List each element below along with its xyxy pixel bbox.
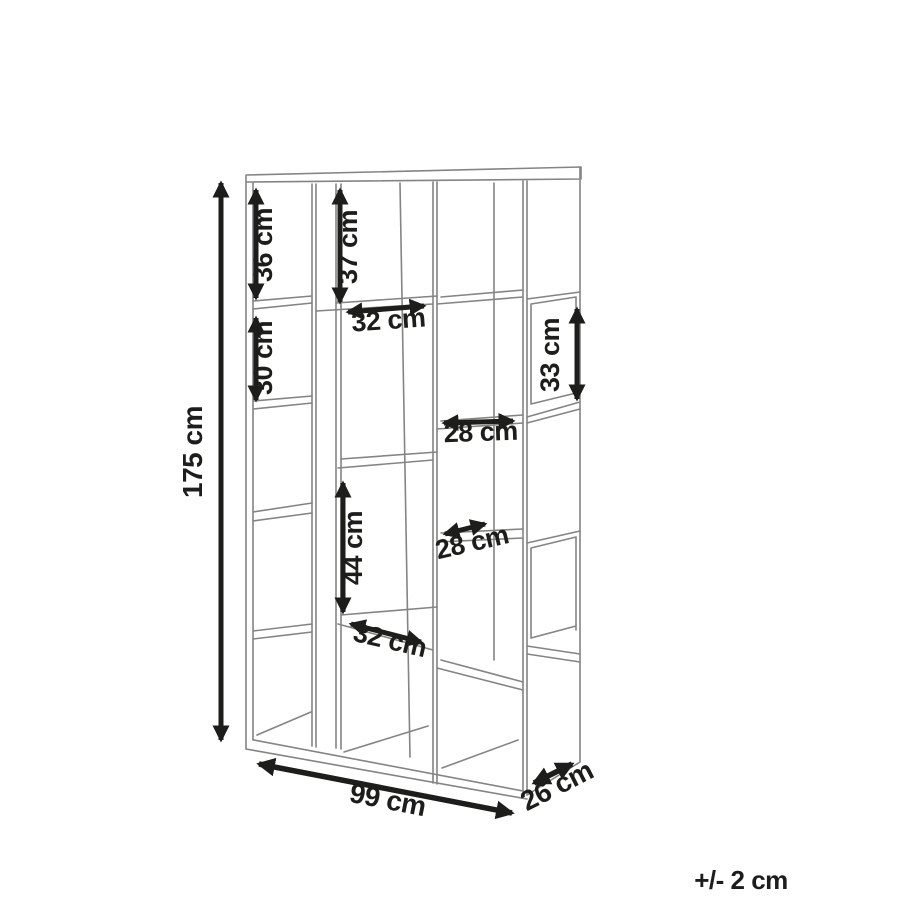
bookshelf-dimension-diagram: 175 cm 36 cm 37 cm 30 cm 32 cm 33 cm 28 …: [0, 0, 920, 920]
dimension-side-cube-height: 33 cm: [535, 309, 577, 399]
dimension-middle-top-compartment-width: 32 cm: [348, 302, 426, 337]
middle-lower-height-label: 44 cm: [338, 511, 368, 585]
side-cube-height-label: 33 cm: [535, 318, 565, 392]
total-width-label: 99 cm: [347, 777, 428, 822]
left-top-height-label: 36 cm: [248, 208, 278, 282]
dimension-total-width: 99 cm: [259, 764, 512, 822]
dimension-annotations: 175 cm 36 cm 37 cm 30 cm 32 cm 33 cm 28 …: [177, 183, 788, 895]
total-height-label: 175 cm: [177, 406, 208, 498]
middle-top-width-label: 32 cm: [350, 302, 426, 337]
bookcase-outline: [246, 167, 581, 799]
dimension-right-middle-compartment-width: 28 cm: [433, 519, 512, 565]
dimension-left-second-compartment-height: 30 cm: [248, 318, 278, 400]
middle-top-height-label: 37 cm: [333, 210, 363, 284]
dimension-middle-lower-compartment-height: 44 cm: [338, 483, 368, 612]
dimension-total-height: 175 cm: [177, 183, 221, 740]
bookcase-frame: [246, 167, 581, 799]
tolerance-note: +/- 2 cm: [694, 865, 788, 895]
dimension-right-upper-compartment-width: 28 cm: [443, 416, 518, 449]
right-upper-width-label: 28 cm: [443, 416, 518, 449]
dimension-middle-top-compartment-height: 37 cm: [333, 190, 363, 302]
right-middle-width-label: 28 cm: [433, 519, 512, 565]
dimension-middle-lower-compartment-width: 32 cm: [351, 617, 430, 663]
middle-lower-width-label: 32 cm: [351, 617, 430, 663]
left-second-height-label: 30 cm: [248, 321, 278, 395]
diagram-canvas: 175 cm 36 cm 37 cm 30 cm 32 cm 33 cm 28 …: [0, 0, 920, 920]
